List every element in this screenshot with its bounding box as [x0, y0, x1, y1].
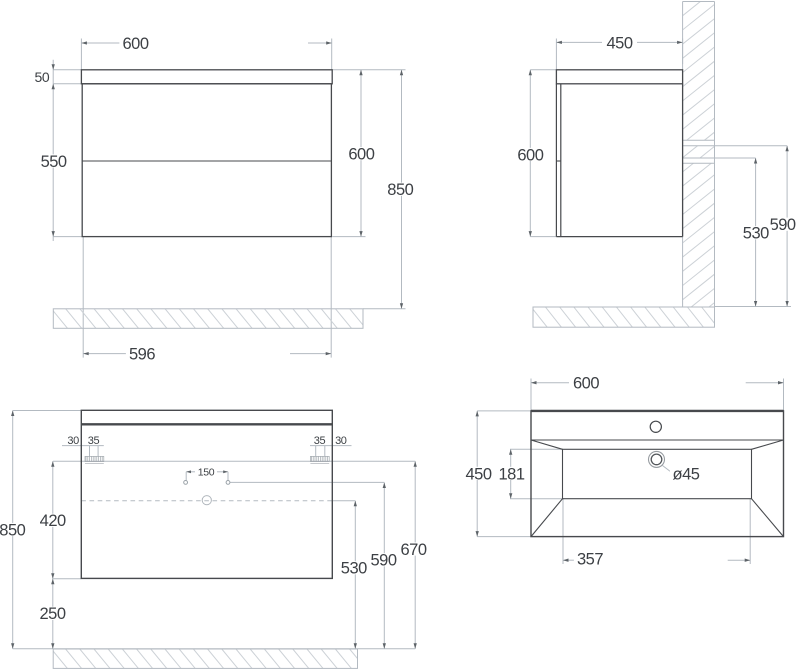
- svg-text:250: 250: [39, 605, 65, 623]
- svg-text:450: 450: [465, 465, 491, 483]
- svg-text:181: 181: [498, 465, 524, 483]
- svg-text:600: 600: [517, 146, 543, 164]
- svg-text:530: 530: [743, 225, 769, 243]
- svg-text:35: 35: [88, 435, 100, 447]
- svg-text:850: 850: [387, 181, 413, 199]
- svg-text:670: 670: [400, 541, 426, 559]
- svg-text:530: 530: [341, 560, 367, 578]
- svg-text:590: 590: [770, 216, 796, 234]
- svg-text:600: 600: [348, 145, 374, 163]
- svg-text:600: 600: [573, 375, 599, 393]
- svg-text:450: 450: [606, 34, 632, 52]
- svg-text:850: 850: [0, 521, 26, 539]
- svg-text:ø45: ø45: [673, 465, 700, 483]
- svg-text:600: 600: [122, 35, 148, 53]
- svg-text:596: 596: [129, 345, 155, 363]
- svg-text:420: 420: [40, 512, 66, 530]
- svg-text:357: 357: [577, 550, 603, 568]
- svg-text:550: 550: [41, 153, 67, 171]
- svg-text:150: 150: [198, 467, 215, 479]
- svg-text:30: 30: [67, 435, 79, 447]
- svg-text:50: 50: [35, 69, 50, 85]
- svg-text:590: 590: [370, 552, 396, 570]
- svg-text:35: 35: [314, 435, 326, 447]
- svg-text:30: 30: [335, 435, 347, 447]
